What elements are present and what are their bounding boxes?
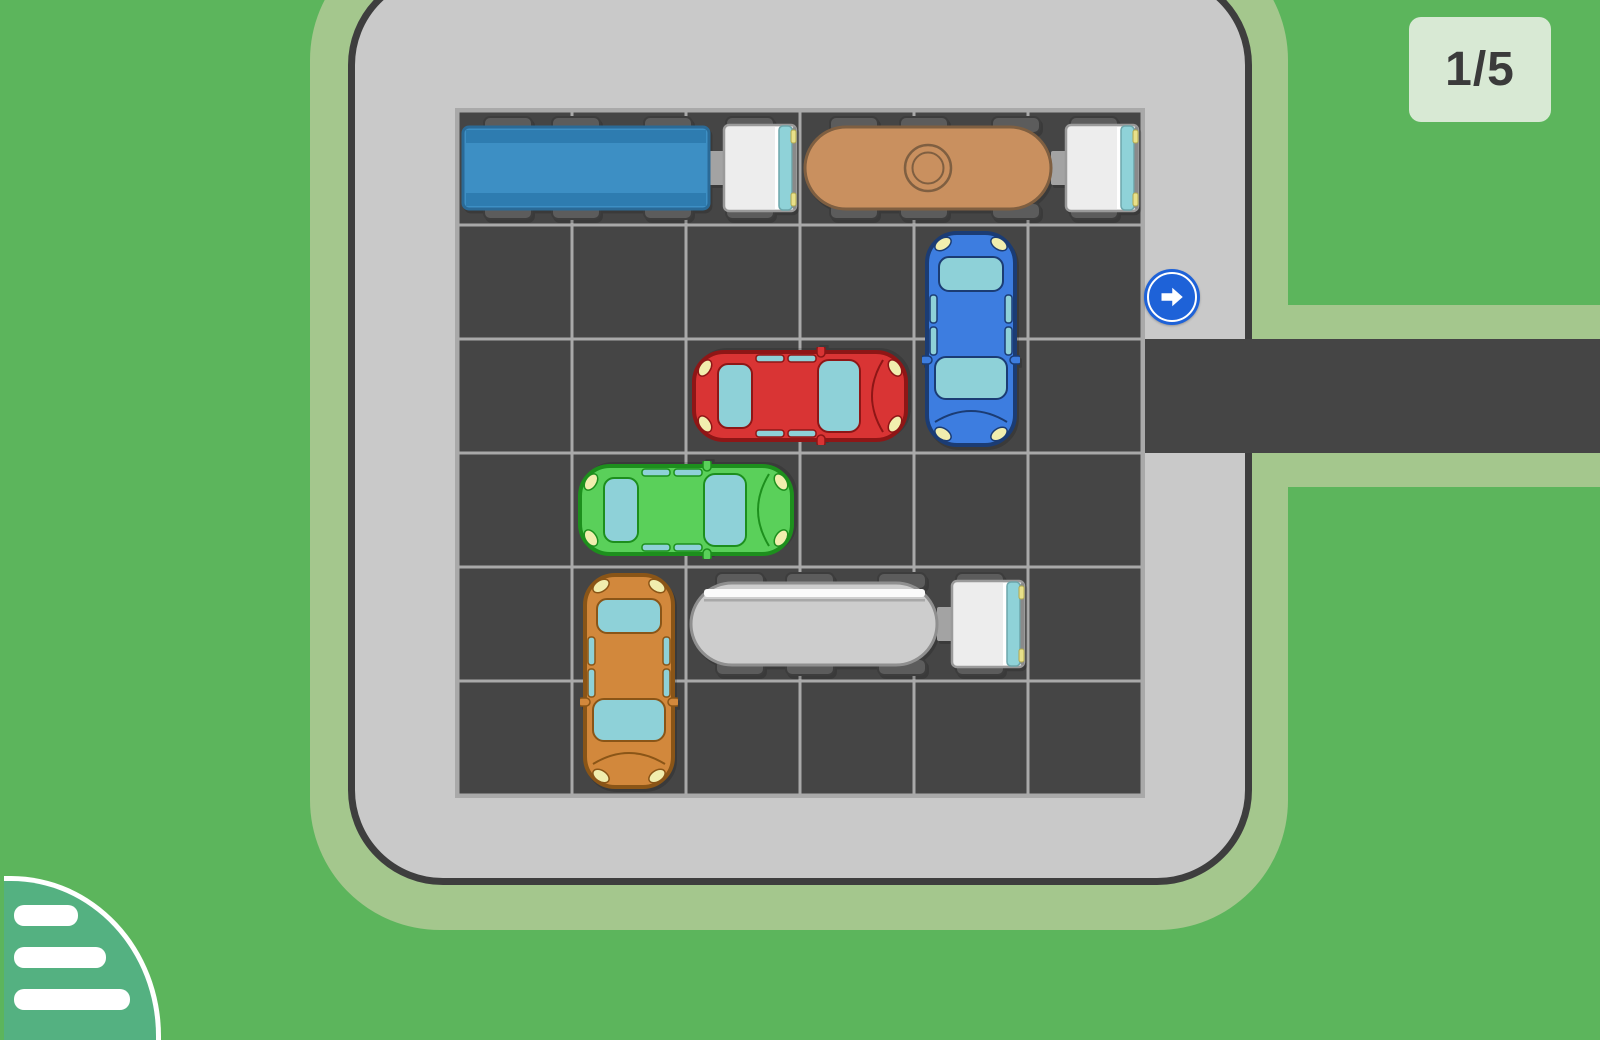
exit-road — [1139, 339, 1600, 453]
vehicle-green-car[interactable] — [576, 461, 796, 559]
exit-arrow-sign — [1144, 269, 1200, 325]
level-badge: 1/5 — [1409, 17, 1551, 122]
vehicle-gray-tanker-truck[interactable] — [688, 567, 1026, 681]
game-scene: 1/5 — [0, 0, 1600, 1040]
arrow-right-icon — [1157, 282, 1187, 312]
menu-button[interactable] — [4, 876, 161, 1040]
vehicle-blue-box-truck[interactable] — [460, 111, 798, 225]
vehicle-red-car[interactable] — [690, 347, 910, 445]
level-counter: 1/5 — [1445, 42, 1515, 97]
vehicle-orange-car[interactable] — [580, 571, 678, 791]
exit-road-shoulder-top — [1252, 305, 1600, 339]
exit-road-shoulder-bottom — [1252, 453, 1600, 487]
vehicle-tan-tanker-truck[interactable] — [802, 111, 1140, 225]
vehicle-blue-car[interactable] — [922, 229, 1020, 449]
